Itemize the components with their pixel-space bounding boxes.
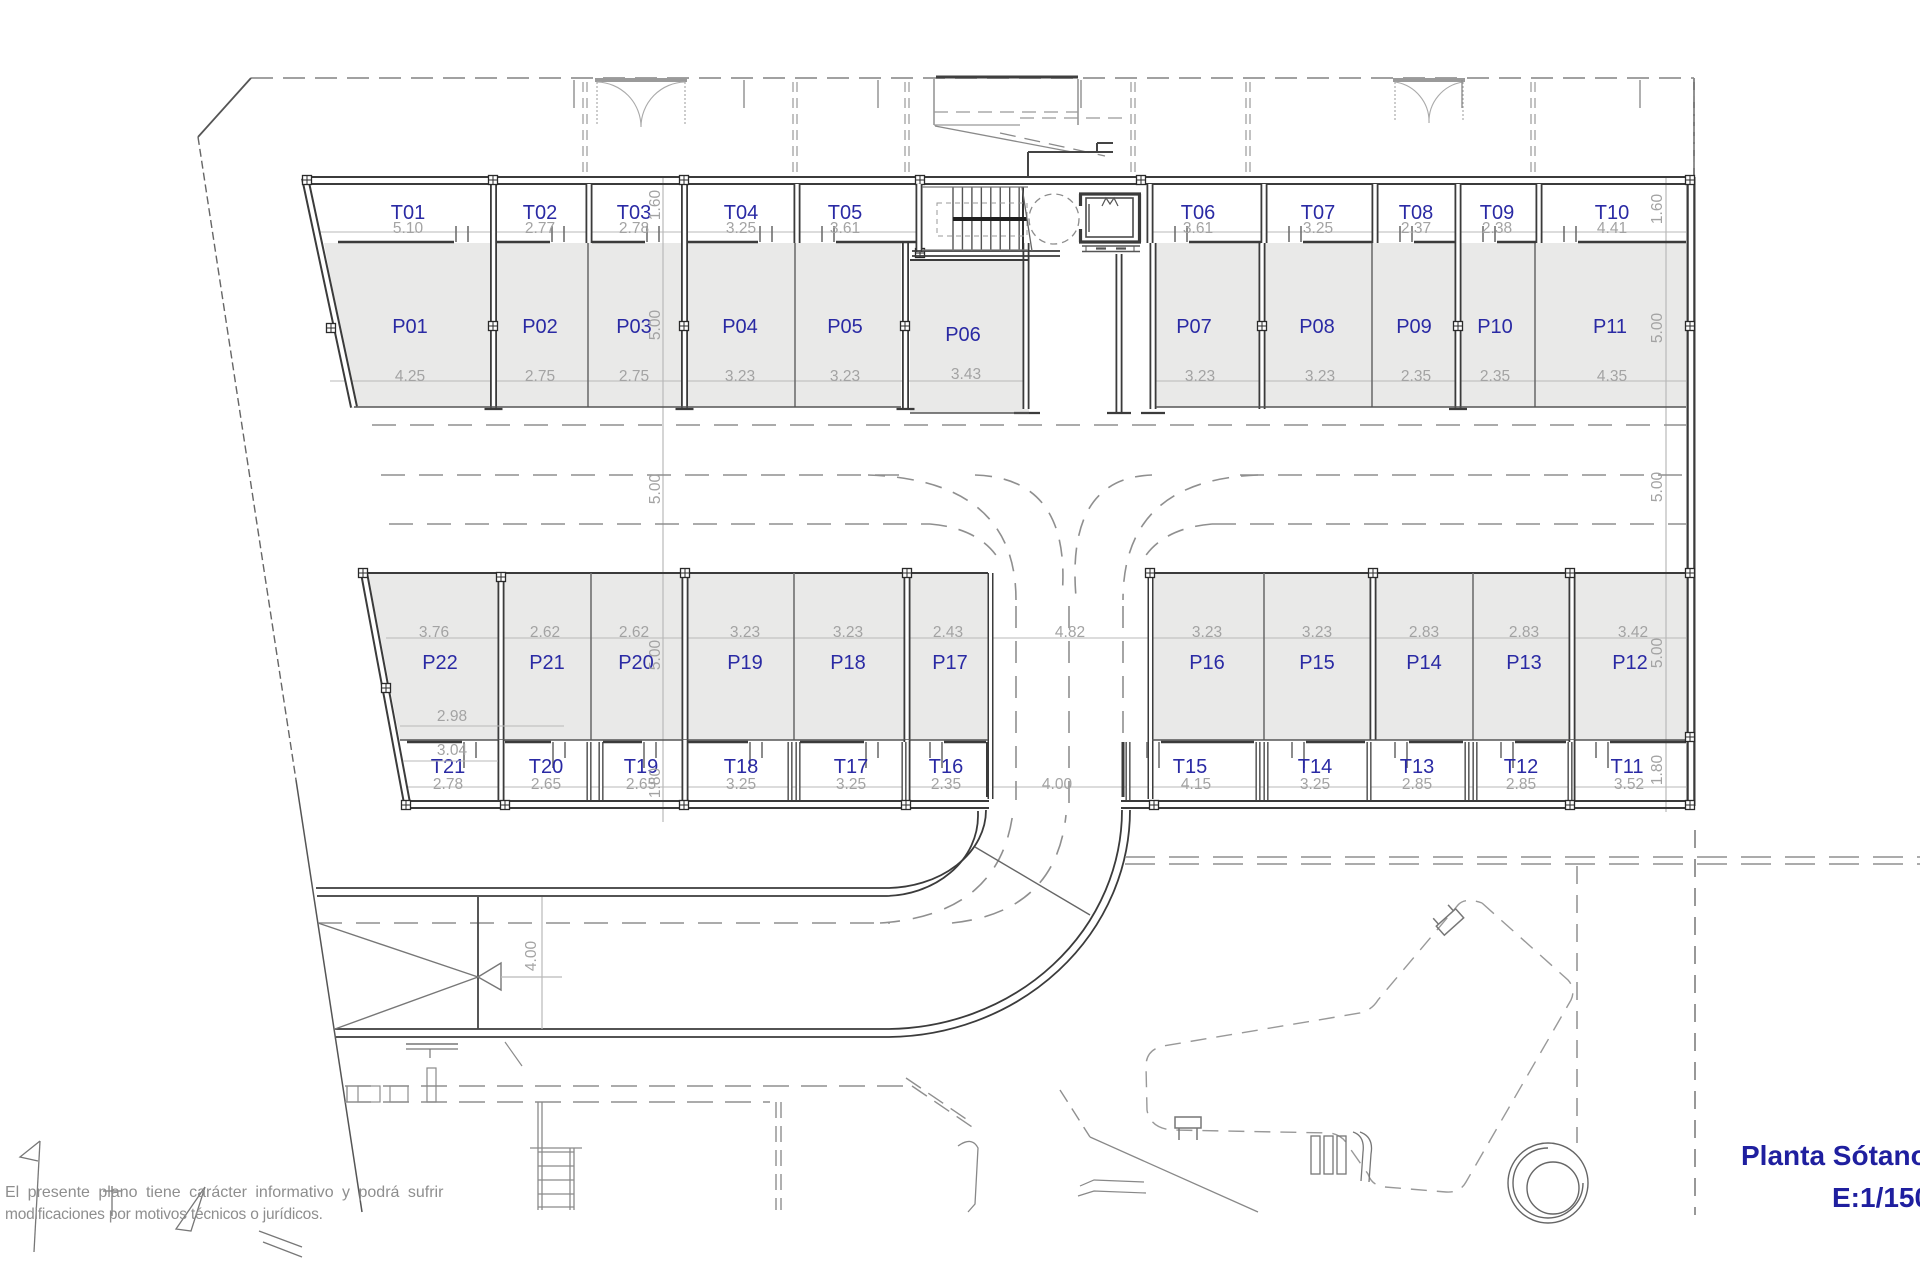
- svg-text:2.38: 2.38: [1482, 220, 1512, 237]
- svg-text:1.80: 1.80: [647, 768, 664, 799]
- svg-text:1.60: 1.60: [1649, 194, 1666, 225]
- svg-text:3.23: 3.23: [730, 624, 760, 641]
- svg-text:P01: P01: [392, 316, 428, 338]
- svg-text:2.62: 2.62: [619, 624, 649, 641]
- svg-text:2.75: 2.75: [619, 368, 649, 385]
- svg-text:2.43: 2.43: [933, 624, 963, 641]
- svg-text:P09: P09: [1396, 316, 1432, 338]
- svg-text:4.35: 4.35: [1597, 368, 1627, 385]
- svg-text:P18: P18: [830, 652, 866, 674]
- svg-text:5.00: 5.00: [1649, 313, 1666, 344]
- svg-text:4.82: 4.82: [1055, 624, 1085, 641]
- svg-text:T14: T14: [1298, 756, 1332, 778]
- svg-text:3.23: 3.23: [833, 624, 863, 641]
- svg-text:2.85: 2.85: [1402, 776, 1432, 793]
- svg-text:2.75: 2.75: [525, 368, 555, 385]
- svg-text:3.23: 3.23: [1192, 624, 1222, 641]
- svg-text:P11: P11: [1593, 316, 1627, 338]
- svg-text:T21: T21: [431, 756, 465, 778]
- svg-text:5.00: 5.00: [1649, 638, 1666, 669]
- svg-text:T16: T16: [929, 756, 963, 778]
- svg-text:2.85: 2.85: [1506, 776, 1536, 793]
- svg-text:P12: P12: [1612, 652, 1648, 674]
- svg-text:T15: T15: [1173, 756, 1207, 778]
- svg-text:3.76: 3.76: [419, 624, 449, 641]
- svg-text:2.98: 2.98: [437, 708, 467, 725]
- svg-text:P22: P22: [422, 652, 458, 674]
- svg-text:2.35: 2.35: [931, 776, 961, 793]
- svg-text:3.52: 3.52: [1614, 776, 1644, 793]
- svg-text:1.80: 1.80: [1649, 755, 1666, 786]
- svg-text:2.77: 2.77: [525, 220, 555, 237]
- svg-text:2.65: 2.65: [531, 776, 561, 793]
- svg-text:3.61: 3.61: [830, 220, 860, 237]
- svg-text:2.78: 2.78: [433, 776, 463, 793]
- svg-text:modificaciones por motivos téc: modificaciones por motivos técnicos o ju…: [5, 1206, 323, 1223]
- svg-text:3.25: 3.25: [1303, 220, 1333, 237]
- svg-text:3.25: 3.25: [836, 776, 866, 793]
- svg-text:2.78: 2.78: [619, 220, 649, 237]
- svg-text:2.83: 2.83: [1509, 624, 1539, 641]
- svg-text:3.23: 3.23: [1302, 624, 1332, 641]
- svg-text:3.23: 3.23: [725, 368, 755, 385]
- svg-text:El presente plano tiene caráct: El presente plano tiene carácter informa…: [5, 1184, 444, 1201]
- svg-text:5.00: 5.00: [647, 310, 664, 341]
- svg-text:P06: P06: [945, 324, 981, 346]
- svg-text:E:1/150: E:1/150: [1832, 1182, 1920, 1213]
- svg-text:5.00: 5.00: [647, 640, 664, 671]
- svg-text:P08: P08: [1299, 316, 1335, 338]
- svg-text:3.23: 3.23: [1305, 368, 1335, 385]
- svg-text:4.00: 4.00: [523, 941, 540, 972]
- svg-text:P05: P05: [827, 316, 863, 338]
- svg-text:P04: P04: [722, 316, 758, 338]
- svg-text:P16: P16: [1189, 652, 1225, 674]
- svg-text:2.62: 2.62: [530, 624, 560, 641]
- svg-text:5.10: 5.10: [393, 220, 424, 237]
- svg-text:2.35: 2.35: [1480, 368, 1510, 385]
- svg-text:3.43: 3.43: [951, 366, 981, 383]
- svg-text:3.23: 3.23: [830, 368, 860, 385]
- svg-text:3.23: 3.23: [1185, 368, 1215, 385]
- svg-text:T17: T17: [834, 756, 868, 778]
- svg-text:P10: P10: [1477, 316, 1513, 338]
- svg-text:T13: T13: [1400, 756, 1434, 778]
- svg-text:1.60: 1.60: [647, 190, 664, 221]
- svg-text:4.41: 4.41: [1597, 220, 1627, 237]
- svg-text:P07: P07: [1176, 316, 1212, 338]
- svg-text:5.00: 5.00: [647, 474, 664, 505]
- svg-text:T11: T11: [1611, 756, 1644, 778]
- svg-text:3.61: 3.61: [1183, 220, 1213, 237]
- svg-text:T18: T18: [724, 756, 758, 778]
- svg-text:P21: P21: [529, 652, 565, 674]
- svg-text:4.25: 4.25: [395, 368, 425, 385]
- svg-text:3.25: 3.25: [1300, 776, 1330, 793]
- svg-text:2.37: 2.37: [1401, 220, 1431, 237]
- svg-text:2.83: 2.83: [1409, 624, 1439, 641]
- svg-text:3.25: 3.25: [726, 776, 756, 793]
- svg-text:4.00: 4.00: [1042, 776, 1073, 793]
- svg-text:Planta Sótano: Planta Sótano: [1741, 1140, 1920, 1171]
- svg-text:P14: P14: [1406, 652, 1442, 674]
- svg-text:T20: T20: [529, 756, 563, 778]
- svg-text:3.25: 3.25: [726, 220, 756, 237]
- svg-text:4.15: 4.15: [1181, 776, 1211, 793]
- svg-text:P17: P17: [932, 652, 968, 674]
- svg-text:P13: P13: [1506, 652, 1542, 674]
- svg-text:T12: T12: [1504, 756, 1538, 778]
- svg-text:P15: P15: [1299, 652, 1335, 674]
- svg-text:P19: P19: [727, 652, 763, 674]
- svg-text:3.04: 3.04: [437, 742, 468, 759]
- svg-text:3.42: 3.42: [1618, 624, 1648, 641]
- svg-text:P02: P02: [522, 316, 558, 338]
- svg-text:2.35: 2.35: [1401, 368, 1431, 385]
- svg-text:5.00: 5.00: [1649, 472, 1666, 503]
